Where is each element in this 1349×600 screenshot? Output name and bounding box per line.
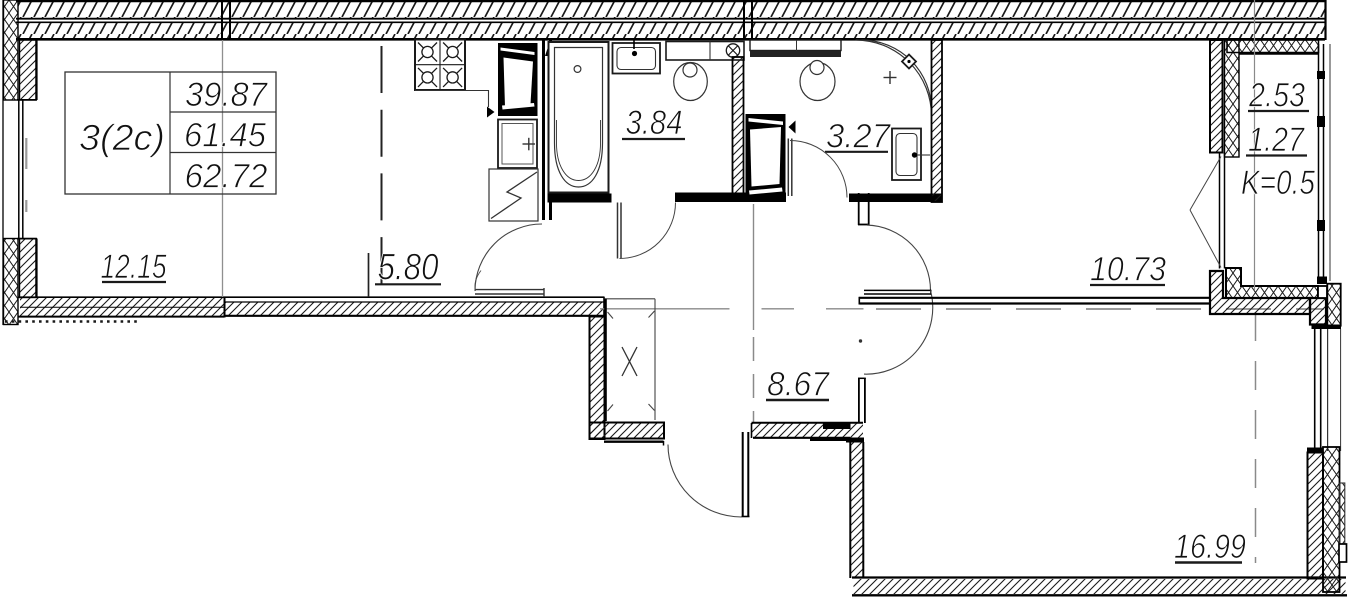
svg-text:2.53: 2.53 [1248,77,1305,115]
svg-text:10.73: 10.73 [1090,251,1166,289]
svg-text:8.67: 8.67 [767,366,830,404]
svg-text:3.27: 3.27 [826,118,891,156]
svg-text:3(2c): 3(2c) [79,117,165,158]
svg-text:12.15: 12.15 [101,248,167,286]
svg-text:5.80: 5.80 [378,247,439,288]
svg-text:3.84: 3.84 [626,104,683,142]
svg-text:39.87: 39.87 [185,76,268,114]
svg-text:1.27: 1.27 [1248,121,1305,159]
svg-text:62.72: 62.72 [185,158,268,196]
svg-text:16.99: 16.99 [1174,528,1246,566]
svg-text:K=0.5: K=0.5 [1241,164,1315,202]
svg-text:61.45: 61.45 [184,117,266,155]
